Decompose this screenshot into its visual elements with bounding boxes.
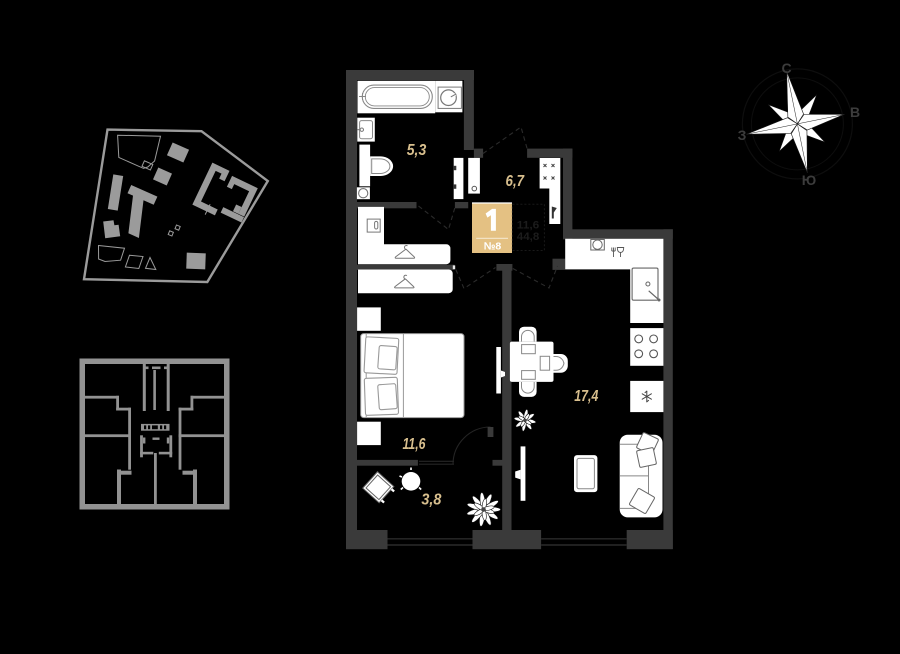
svg-text:44,8: 44,8 bbox=[517, 231, 540, 243]
svg-text:11,6: 11,6 bbox=[517, 220, 540, 232]
svg-text:З: З bbox=[738, 127, 747, 143]
svg-text:3,8: 3,8 bbox=[421, 492, 441, 509]
svg-text:Ю: Ю bbox=[802, 172, 816, 188]
svg-text:11,6: 11,6 bbox=[403, 436, 426, 453]
svg-text:В: В bbox=[850, 104, 860, 120]
svg-text:6,7: 6,7 bbox=[506, 173, 525, 190]
svg-text:17,4: 17,4 bbox=[574, 388, 598, 405]
svg-text:5,3: 5,3 bbox=[407, 142, 427, 159]
svg-text:С: С bbox=[781, 60, 791, 76]
svg-text:№8: №8 bbox=[484, 241, 502, 253]
